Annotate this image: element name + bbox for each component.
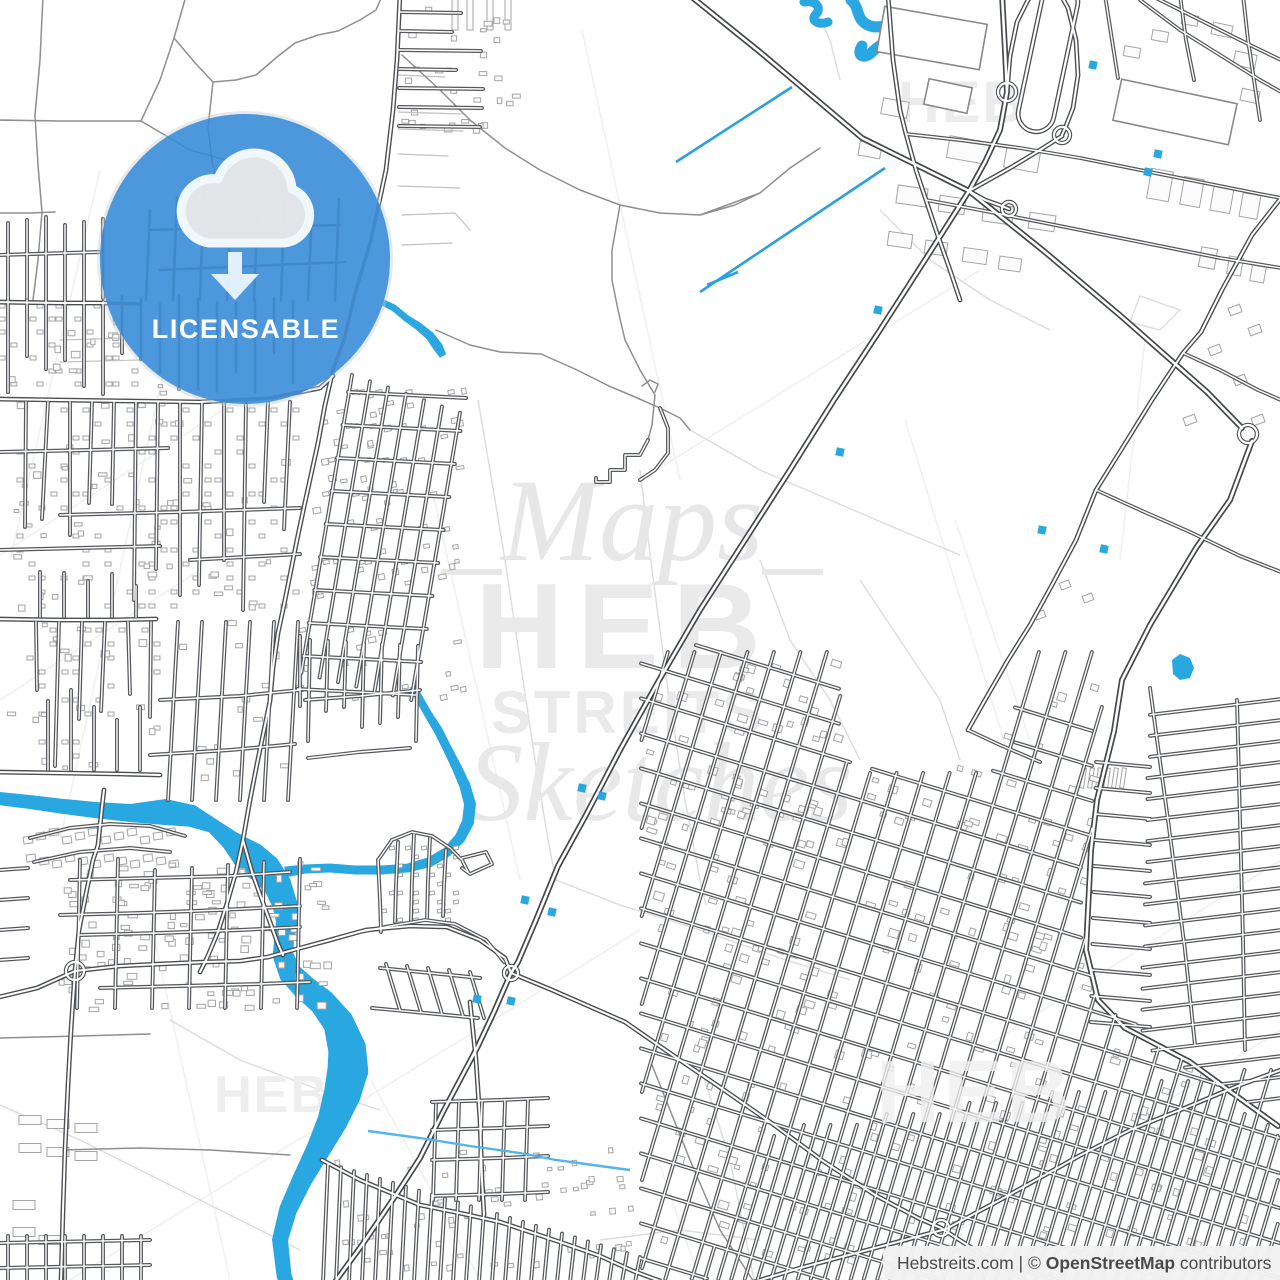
svg-text:Hebstreits.com | © OpenStreetM: Hebstreits.com | © OpenStreetMap contrib… — [897, 1253, 1272, 1273]
svg-text:HEB: HEB — [475, 558, 775, 694]
svg-text:HEB: HEB — [214, 1066, 330, 1124]
svg-text:LICENSABLE: LICENSABLE — [152, 314, 341, 344]
svg-text:HEB: HEB — [876, 1042, 1074, 1141]
